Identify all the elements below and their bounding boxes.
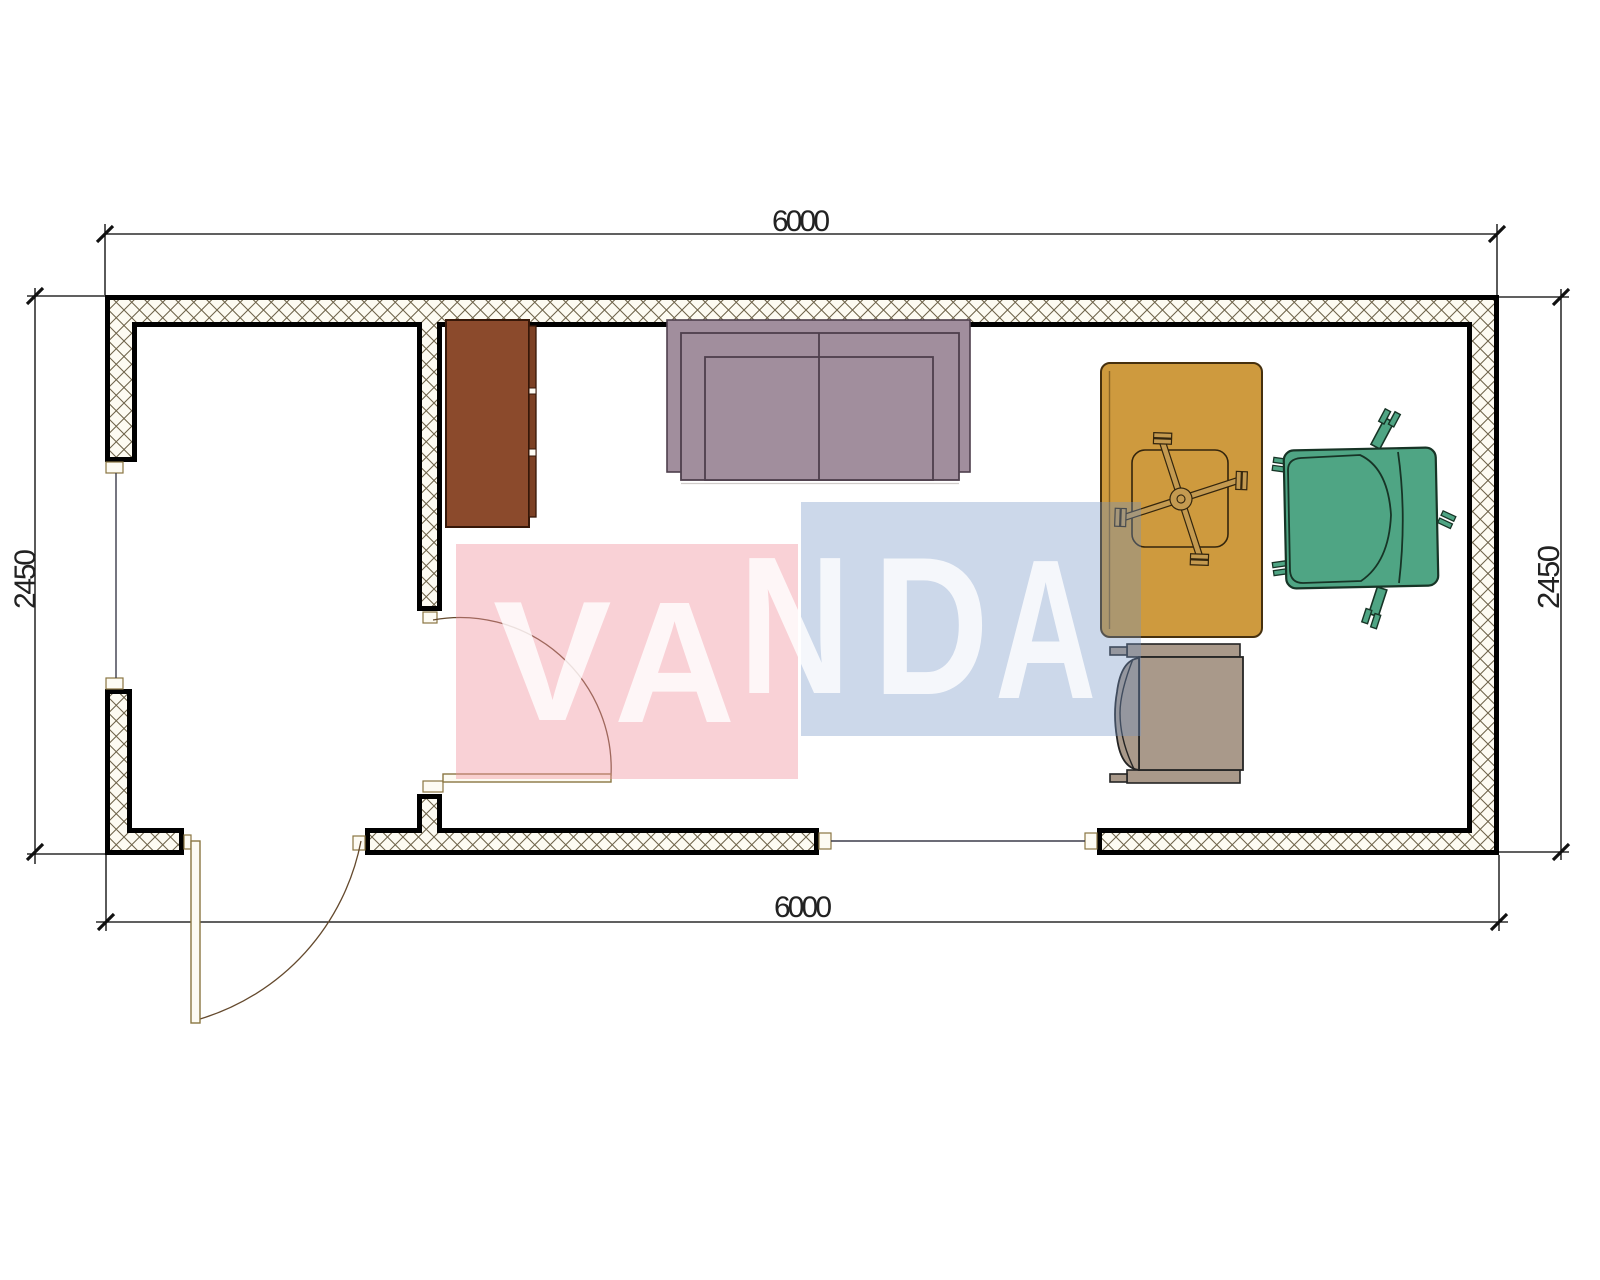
svg-text:N: N [739,516,851,735]
svg-text:2450: 2450 [1531,545,1566,609]
svg-text:6000: 6000 [772,205,830,238]
svg-text:A: A [614,567,735,760]
svg-text:V: V [493,565,612,756]
svg-text:A: A [995,519,1096,741]
svg-text:D: D [873,516,989,736]
svg-text:2450: 2450 [9,549,42,609]
svg-text:6000: 6000 [774,891,832,924]
